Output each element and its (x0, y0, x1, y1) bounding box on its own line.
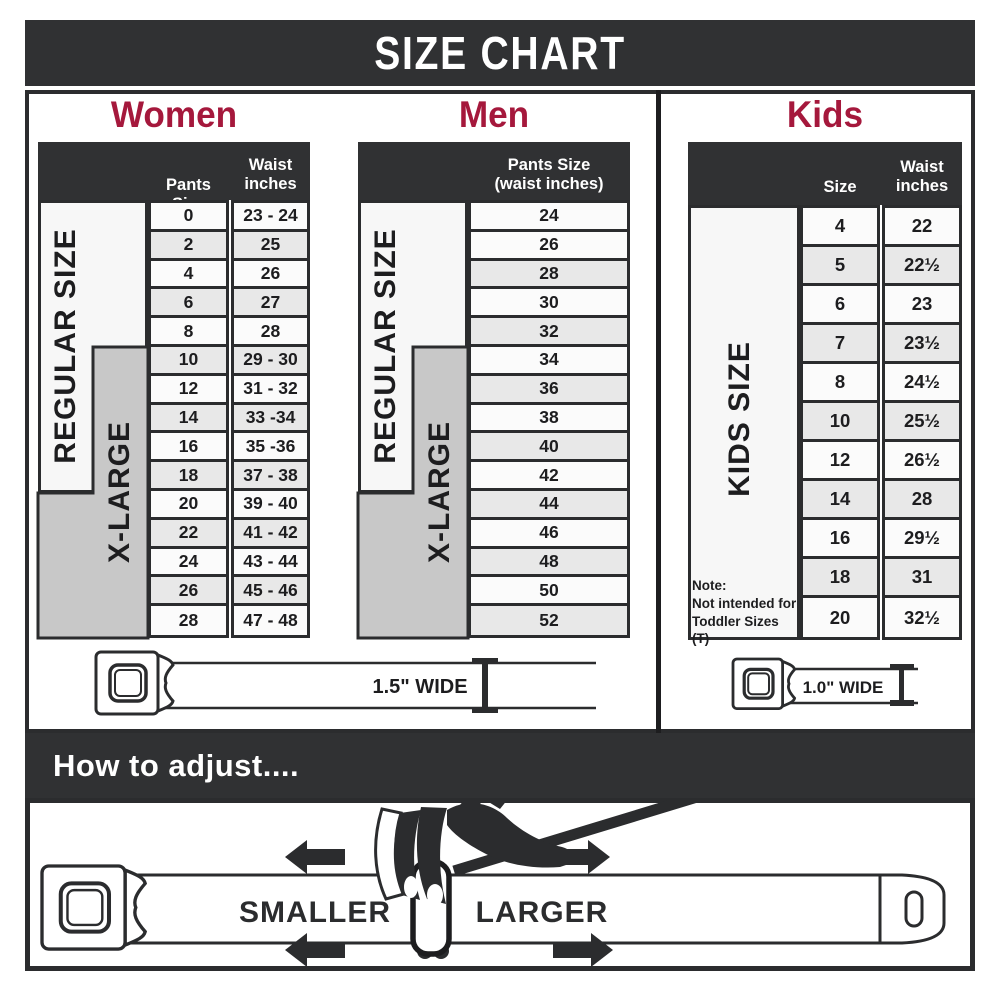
table-cell: 5 (803, 247, 877, 286)
adjust-belt-illustration: SMALLER LARGER (30, 800, 970, 968)
kids-waist-header: Waist inches (882, 158, 962, 197)
table-cell: 38 (471, 405, 627, 434)
kids-size-label: KIDS SIZE (723, 269, 757, 569)
table-cell: 20 (803, 598, 877, 637)
table-cell: 12 (803, 442, 877, 481)
how-to-adjust-title: How to adjust.... (25, 748, 299, 784)
table-cell: 23 (885, 286, 959, 325)
seatbelt-buckle-icon (42, 866, 145, 949)
table-cell: 31 (885, 559, 959, 598)
table-cell: 40 (471, 433, 627, 462)
arrow-right-icon (550, 840, 610, 874)
table-cell: 28 (234, 318, 307, 347)
men-regular-size-label: REGULAR SIZE (369, 206, 403, 486)
table-cell: 22½ (885, 247, 959, 286)
how-to-adjust-bar: How to adjust.... (25, 733, 975, 798)
table-cell: 23½ (885, 325, 959, 364)
table-cell: 41 - 42 (234, 520, 307, 549)
men-pants-size-column: 242628303234363840424446485052 (468, 200, 630, 638)
table-cell: 39 - 40 (234, 491, 307, 520)
table-cell: 0 (151, 203, 226, 232)
table-cell: 22 (151, 520, 226, 549)
table-cell: 26 (151, 577, 226, 606)
table-cell: 48 (471, 549, 627, 578)
table-cell: 12 (151, 376, 226, 405)
table-cell: 14 (803, 481, 877, 520)
table-cell: 16 (803, 520, 877, 559)
table-cell: 28 (151, 606, 226, 635)
kids-belt-illustration: 1.0" WIDE (725, 653, 960, 721)
table-cell: 42 (471, 462, 627, 491)
table-cell: 46 (471, 520, 627, 549)
table-cell: 37 - 38 (234, 462, 307, 491)
table-cell: 29½ (885, 520, 959, 559)
kids-belt-width-label: 1.0" WIDE (803, 678, 884, 697)
table-cell: 27 (234, 289, 307, 318)
section-divider (656, 90, 661, 733)
women-waist-header: Waist inches (231, 156, 310, 195)
table-cell: 23 - 24 (234, 203, 307, 232)
men-section-title: Men (399, 94, 589, 136)
women-x-large-label: X-LARGE (103, 352, 137, 632)
table-cell: 10 (803, 403, 877, 442)
table-cell: 24 (151, 549, 226, 578)
table-cell: 4 (151, 261, 226, 290)
arrow-left-icon (285, 840, 345, 874)
table-cell: 36 (471, 376, 627, 405)
page-title: SIZE CHART (374, 26, 626, 80)
table-cell: 29 - 30 (234, 347, 307, 376)
kids-section-title: Kids (730, 94, 920, 136)
women-pants-size-column: 0246810121416182022242628 (148, 200, 229, 638)
table-cell: 6 (151, 289, 226, 318)
table-cell: 52 (471, 606, 627, 635)
table-cell: 8 (803, 364, 877, 403)
larger-label: LARGER (476, 896, 609, 929)
women-regular-size-label: REGULAR SIZE (49, 206, 83, 486)
table-cell: 14 (151, 405, 226, 434)
table-cell: 32 (471, 318, 627, 347)
table-cell: 7 (803, 325, 877, 364)
table-cell: 16 (151, 433, 226, 462)
table-cell: 32½ (885, 598, 959, 637)
table-cell: 28 (471, 261, 627, 290)
smaller-label: SMALLER (239, 896, 391, 929)
table-cell: 8 (151, 318, 226, 347)
table-cell: 18 (803, 559, 877, 598)
table-cell: 20 (151, 491, 226, 520)
table-cell: 25½ (885, 403, 959, 442)
table-cell: 24½ (885, 364, 959, 403)
table-cell: 30 (471, 289, 627, 318)
table-cell: 47 - 48 (234, 606, 307, 635)
men-pants-size-header: Pants Size (waist inches) (468, 156, 630, 195)
title-bar: SIZE CHART (25, 20, 975, 86)
adult-belt-width-label: 1.5" WIDE (372, 676, 467, 698)
table-cell: 26 (471, 232, 627, 261)
table-cell: 31 - 32 (234, 376, 307, 405)
men-x-large-label: X-LARGE (423, 352, 457, 632)
table-cell: 6 (803, 286, 877, 325)
table-cell: 43 - 44 (234, 549, 307, 578)
table-cell: 25 (234, 232, 307, 261)
seatbelt-buckle-icon (733, 659, 795, 709)
table-cell: 4 (803, 208, 877, 247)
table-cell: 44 (471, 491, 627, 520)
table-cell: 35 -36 (234, 433, 307, 462)
seatbelt-buckle-icon (96, 652, 173, 714)
women-waist-column: 23 - 242526272829 - 3031 - 3233 -3435 -3… (231, 200, 310, 638)
table-cell: 45 - 46 (234, 577, 307, 606)
table-cell: 26 (234, 261, 307, 290)
table-cell: 26½ (885, 442, 959, 481)
adult-belt-illustration: 1.5" WIDE (90, 646, 610, 730)
kids-waist-column: 2222½2323½24½25½26½2829½3132½ (882, 205, 962, 640)
table-cell: 33 -34 (234, 405, 307, 434)
kids-size-column: 45678101214161820 (800, 205, 880, 640)
table-cell: 10 (151, 347, 226, 376)
table-cell: 28 (885, 481, 959, 520)
kids-note: Note: Not intended for Toddler Sizes (T) (692, 577, 798, 648)
table-cell: 34 (471, 347, 627, 376)
belt-tip (880, 875, 944, 943)
size-chart-page: SIZE CHART Women Men Kids Pants Size Wai… (0, 0, 1000, 1000)
table-cell: 22 (885, 208, 959, 247)
women-section-title: Women (79, 94, 269, 136)
table-cell: 24 (471, 203, 627, 232)
table-cell: 18 (151, 462, 226, 491)
table-cell: 2 (151, 232, 226, 261)
table-cell: 50 (471, 577, 627, 606)
kids-size-header: Size (800, 178, 880, 197)
